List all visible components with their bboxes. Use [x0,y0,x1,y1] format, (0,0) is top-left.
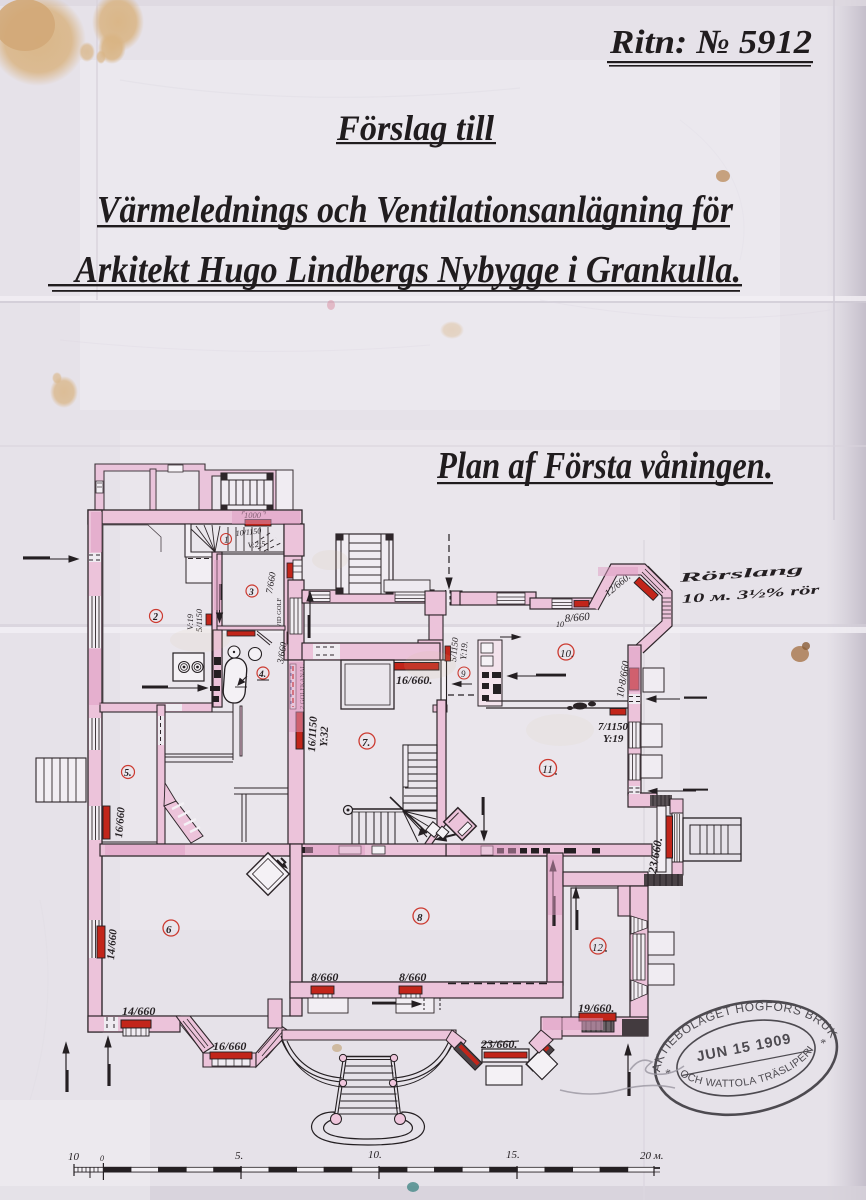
svg-text:7/1150: 7/1150 [598,721,628,733]
svg-text:Plan af Första våningen.: Plan af Första våningen. [436,445,773,487]
svg-text:12: 12 [592,942,604,954]
svg-text:15.: 15. [506,1149,520,1161]
svg-text:11: 11 [542,762,553,776]
svg-text:1: 1 [224,535,229,545]
svg-text:5.: 5. [235,1150,243,1162]
svg-text:10.: 10. [560,648,574,660]
svg-text:Y:19.: Y:19. [458,641,470,660]
svg-text:10: 10 [68,1151,80,1163]
svg-text:V:2:5: V:2:5 [247,539,266,550]
svg-text:5.: 5. [124,768,132,779]
svg-text:6: 6 [166,924,172,936]
svg-text:9: 9 [461,669,466,679]
svg-text:7.: 7. [362,737,370,749]
svg-text:8: 8 [417,912,423,924]
svg-text:8/660: 8/660 [311,970,338,984]
svg-text:20 м.: 20 м. [640,1150,664,1162]
svg-text:10: 10 [556,620,564,629]
svg-text:Ritn: № 5912: Ritn: № 5912 [609,24,812,61]
svg-text:V:19: V:19 [185,613,195,630]
svg-text:8/660: 8/660 [399,970,426,984]
svg-text:VID GOLF: VID GOLF [276,597,283,628]
svg-text:Y:32: Y:32 [318,726,331,747]
svg-text:2: 2 [152,612,158,623]
svg-text:10.: 10. [368,1149,382,1161]
svg-text:4.: 4. [258,670,266,680]
svg-text:3: 3 [248,588,254,598]
svg-text:0: 0 [100,1154,104,1163]
svg-text:14/660: 14/660 [122,1004,155,1018]
svg-text:16/660: 16/660 [213,1039,246,1053]
svg-text:23/660.: 23/660. [480,1037,517,1051]
svg-text:Värmelednings och Ventilations: Värmelednings och Ventilationsanlägning … [97,189,734,231]
svg-text:Y:19: Y:19 [603,733,624,745]
svg-text:8/660: 8/660 [564,611,591,625]
